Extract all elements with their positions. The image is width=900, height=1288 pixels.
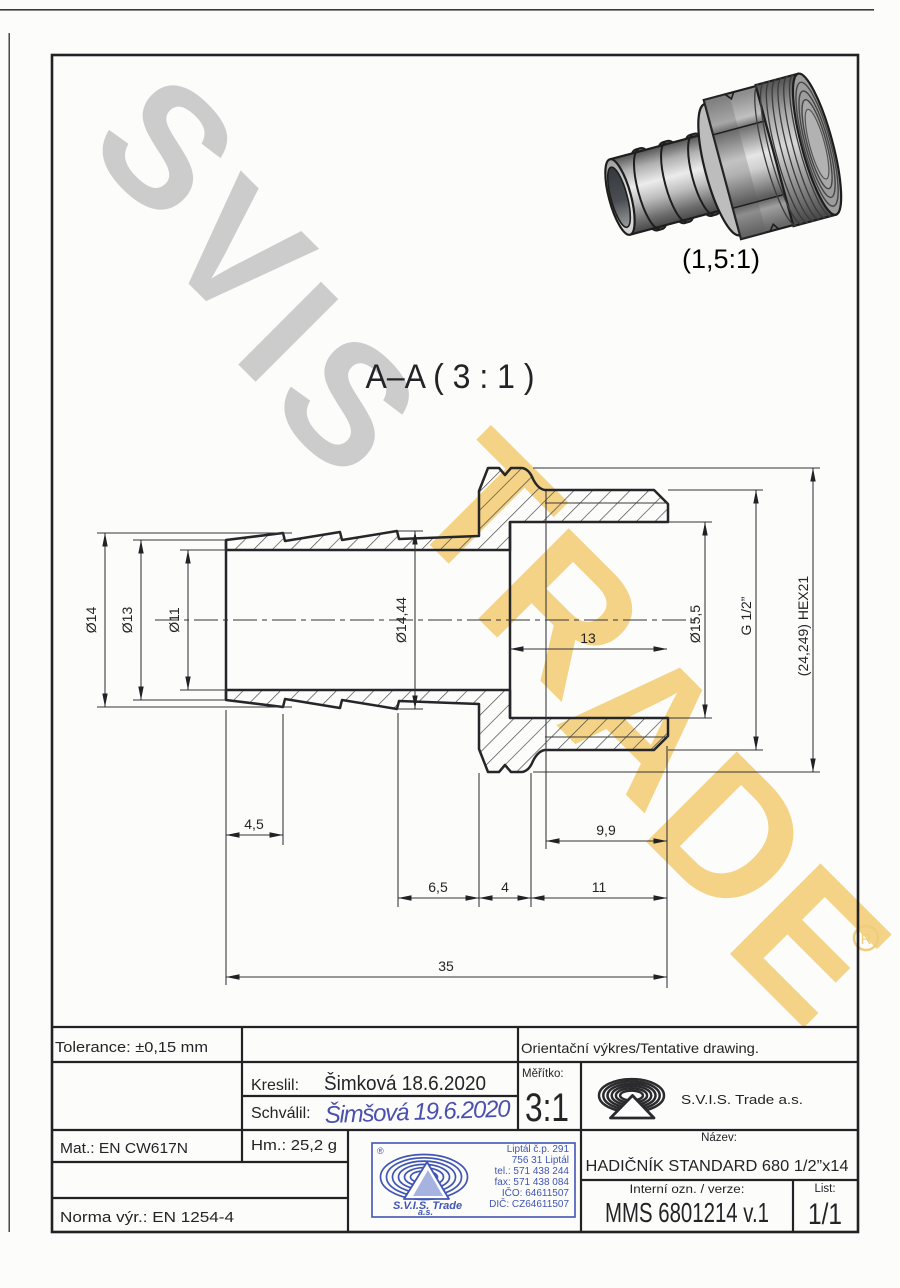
- svg-text:Mat.: EN CW617N: Mat.: EN CW617N: [60, 1140, 188, 1157]
- svg-text:HADIČNÍK STANDARD 680 1/2”x14: HADIČNÍK STANDARD 680 1/2”x14: [586, 1156, 849, 1175]
- svg-text:4,5: 4,5: [244, 816, 264, 832]
- svg-text:4: 4: [501, 879, 509, 895]
- svg-text:Kreslil:: Kreslil:: [251, 1077, 299, 1094]
- svg-text:Interní ozn. / verze:: Interní ozn. / verze:: [630, 1184, 745, 1196]
- svg-text:Ø11: Ø11: [166, 607, 182, 633]
- svg-text:Ø14: Ø14: [83, 607, 99, 634]
- svg-text:(24,249) HEX21: (24,249) HEX21: [795, 576, 811, 677]
- svg-text:Šimková 18.6.2020: Šimková 18.6.2020: [324, 1072, 486, 1095]
- svg-text:(1,5:1): (1,5:1): [682, 244, 760, 274]
- svg-text:Ø13: Ø13: [119, 607, 135, 634]
- svg-text:R: R: [861, 931, 872, 948]
- svg-text:Název:: Název:: [701, 1132, 737, 1144]
- svg-text:Norma výr.: EN 1254-4: Norma výr.: EN 1254-4: [60, 1209, 234, 1226]
- svg-text:Ø14,44: Ø14,44: [393, 597, 409, 643]
- svg-text:35: 35: [438, 958, 454, 974]
- svg-text:1/1: 1/1: [808, 1198, 842, 1231]
- svg-text:Ø15,5: Ø15,5: [687, 605, 703, 643]
- svg-text:756 31 Liptál: 756 31 Liptál: [512, 1155, 569, 1166]
- svg-text:MMS 6801214 v.1: MMS 6801214 v.1: [605, 1197, 769, 1228]
- svg-text:9,9: 9,9: [596, 822, 616, 838]
- svg-text:S.V.I.S. Trade a.s.: S.V.I.S. Trade a.s.: [681, 1093, 803, 1107]
- svg-text:IČO: 64611507: IČO: 64611507: [502, 1186, 570, 1199]
- svg-text:List:: List:: [814, 1183, 835, 1195]
- svg-text:Měřítko:: Měřítko:: [522, 1068, 564, 1080]
- svg-text:3:1: 3:1: [525, 1086, 569, 1130]
- svg-text:Orientační výkres/Tentative dr: Orientační výkres/Tentative drawing.: [521, 1040, 759, 1056]
- svg-text:11: 11: [592, 879, 607, 895]
- svg-text:Hm.: 25,2 g: Hm.: 25,2 g: [251, 1137, 337, 1154]
- svg-text:Schválil:: Schválil:: [251, 1105, 311, 1122]
- svg-text:DIČ: CZ64611507: DIČ: CZ64611507: [489, 1197, 569, 1210]
- svg-text:a.s.: a.s.: [418, 1207, 433, 1217]
- svg-text:Tolerance: ±0,15 mm: Tolerance: ±0,15 mm: [55, 1039, 208, 1056]
- svg-text:A–A ( 3 : 1 ): A–A ( 3 : 1 ): [366, 358, 535, 396]
- svg-text:Liptál č.p. 291: Liptál č.p. 291: [507, 1144, 570, 1155]
- svg-text:6,5: 6,5: [428, 879, 448, 895]
- svg-text:fax: 571 438 084: fax: 571 438 084: [494, 1177, 569, 1188]
- svg-text:®: ®: [377, 1146, 384, 1156]
- svg-text:G 1/2”: G 1/2”: [738, 596, 754, 635]
- svg-text:13: 13: [580, 630, 596, 646]
- svg-text:tel.: 571 438 244: tel.: 571 438 244: [494, 1166, 569, 1177]
